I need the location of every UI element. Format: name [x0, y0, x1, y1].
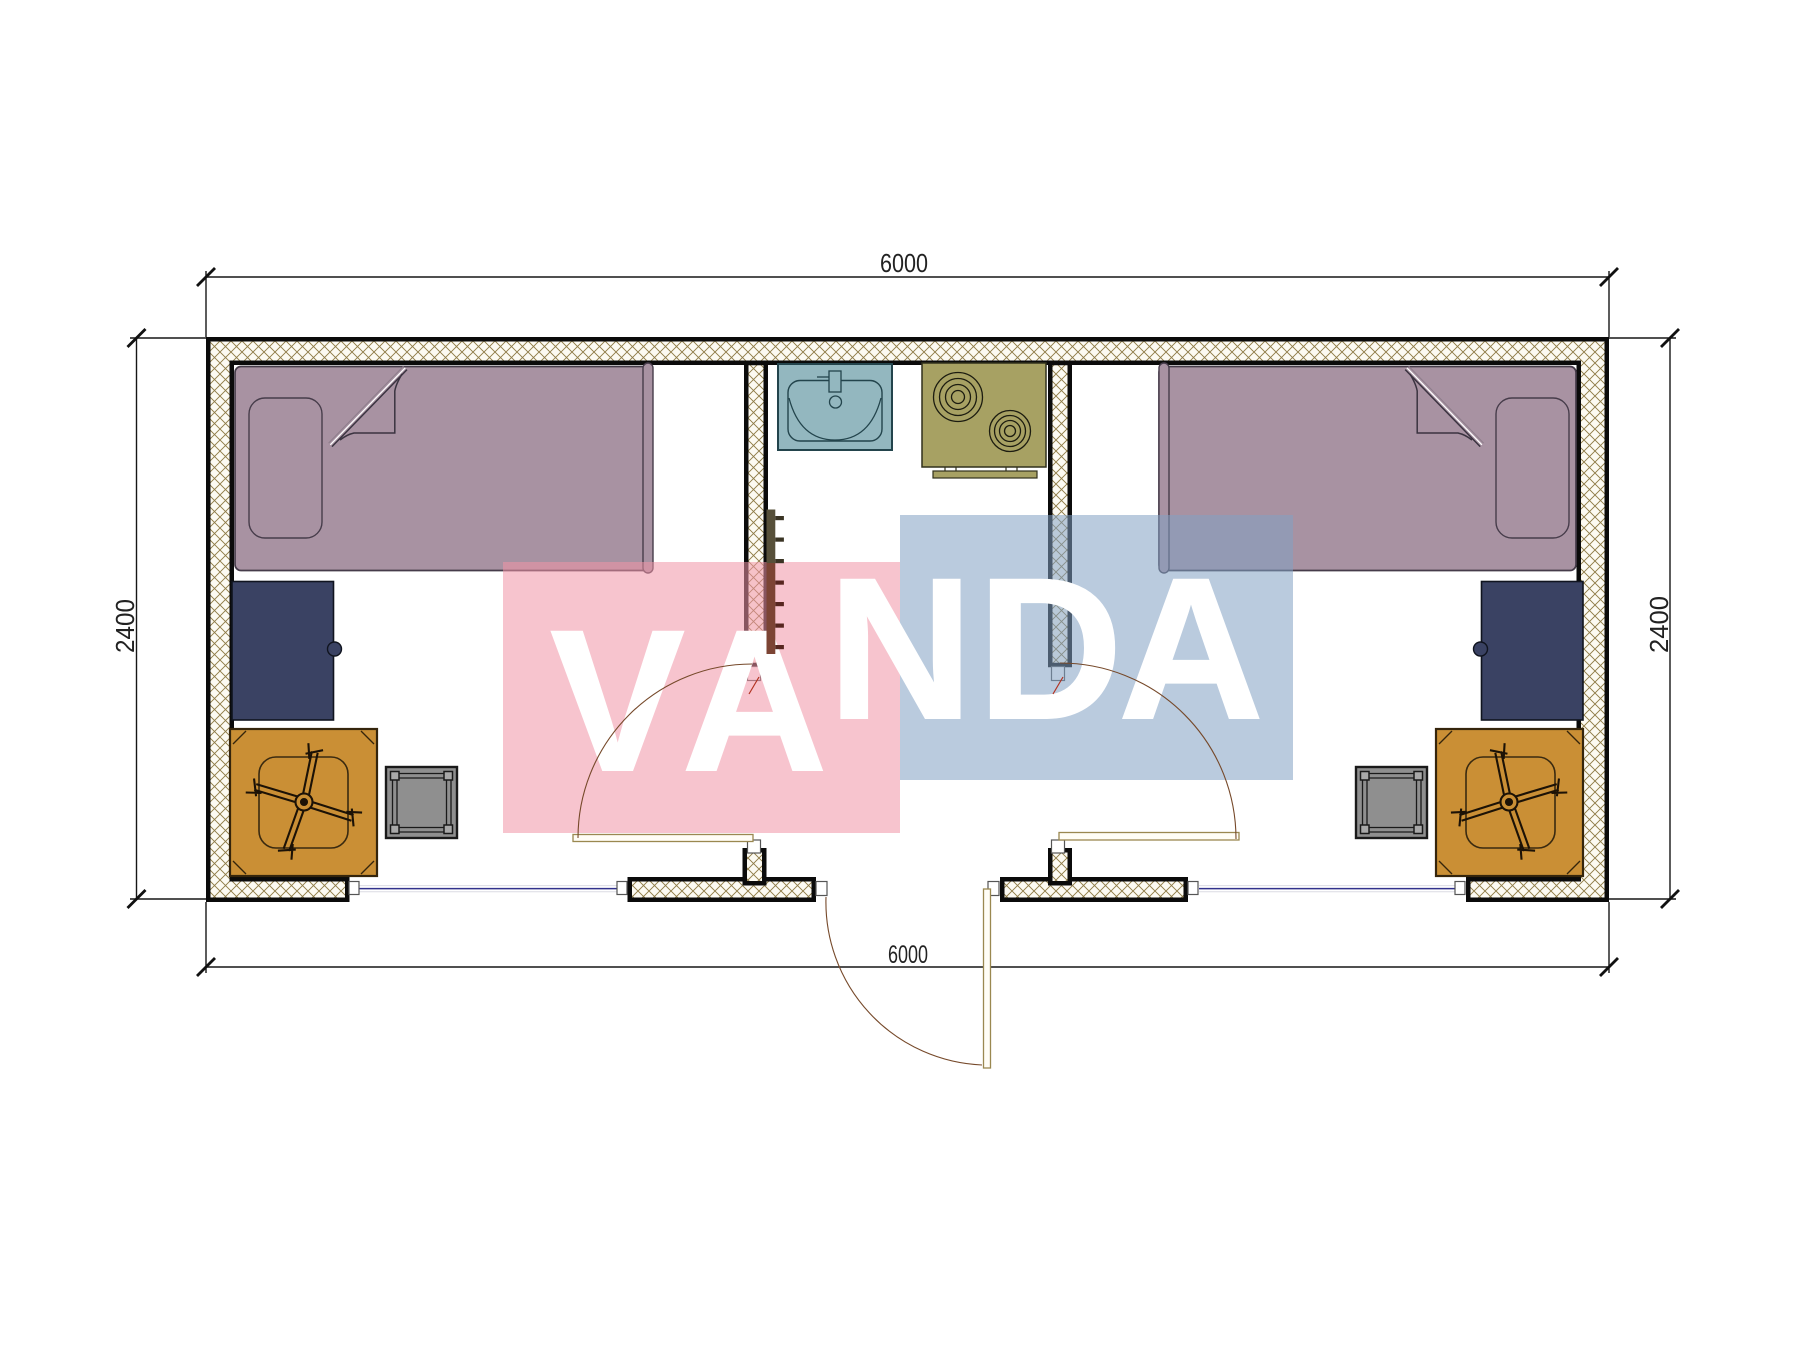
svg-text:A: A: [1118, 536, 1263, 761]
svg-text:V: V: [550, 588, 684, 813]
svg-text:N: N: [828, 536, 973, 761]
svg-text:6000: 6000: [880, 248, 928, 278]
svg-text:6000: 6000: [888, 941, 928, 969]
svg-text:D: D: [977, 536, 1122, 761]
svg-text:2400: 2400: [1644, 596, 1674, 653]
svg-text:A: A: [682, 588, 827, 813]
svg-text:2400: 2400: [110, 599, 140, 653]
